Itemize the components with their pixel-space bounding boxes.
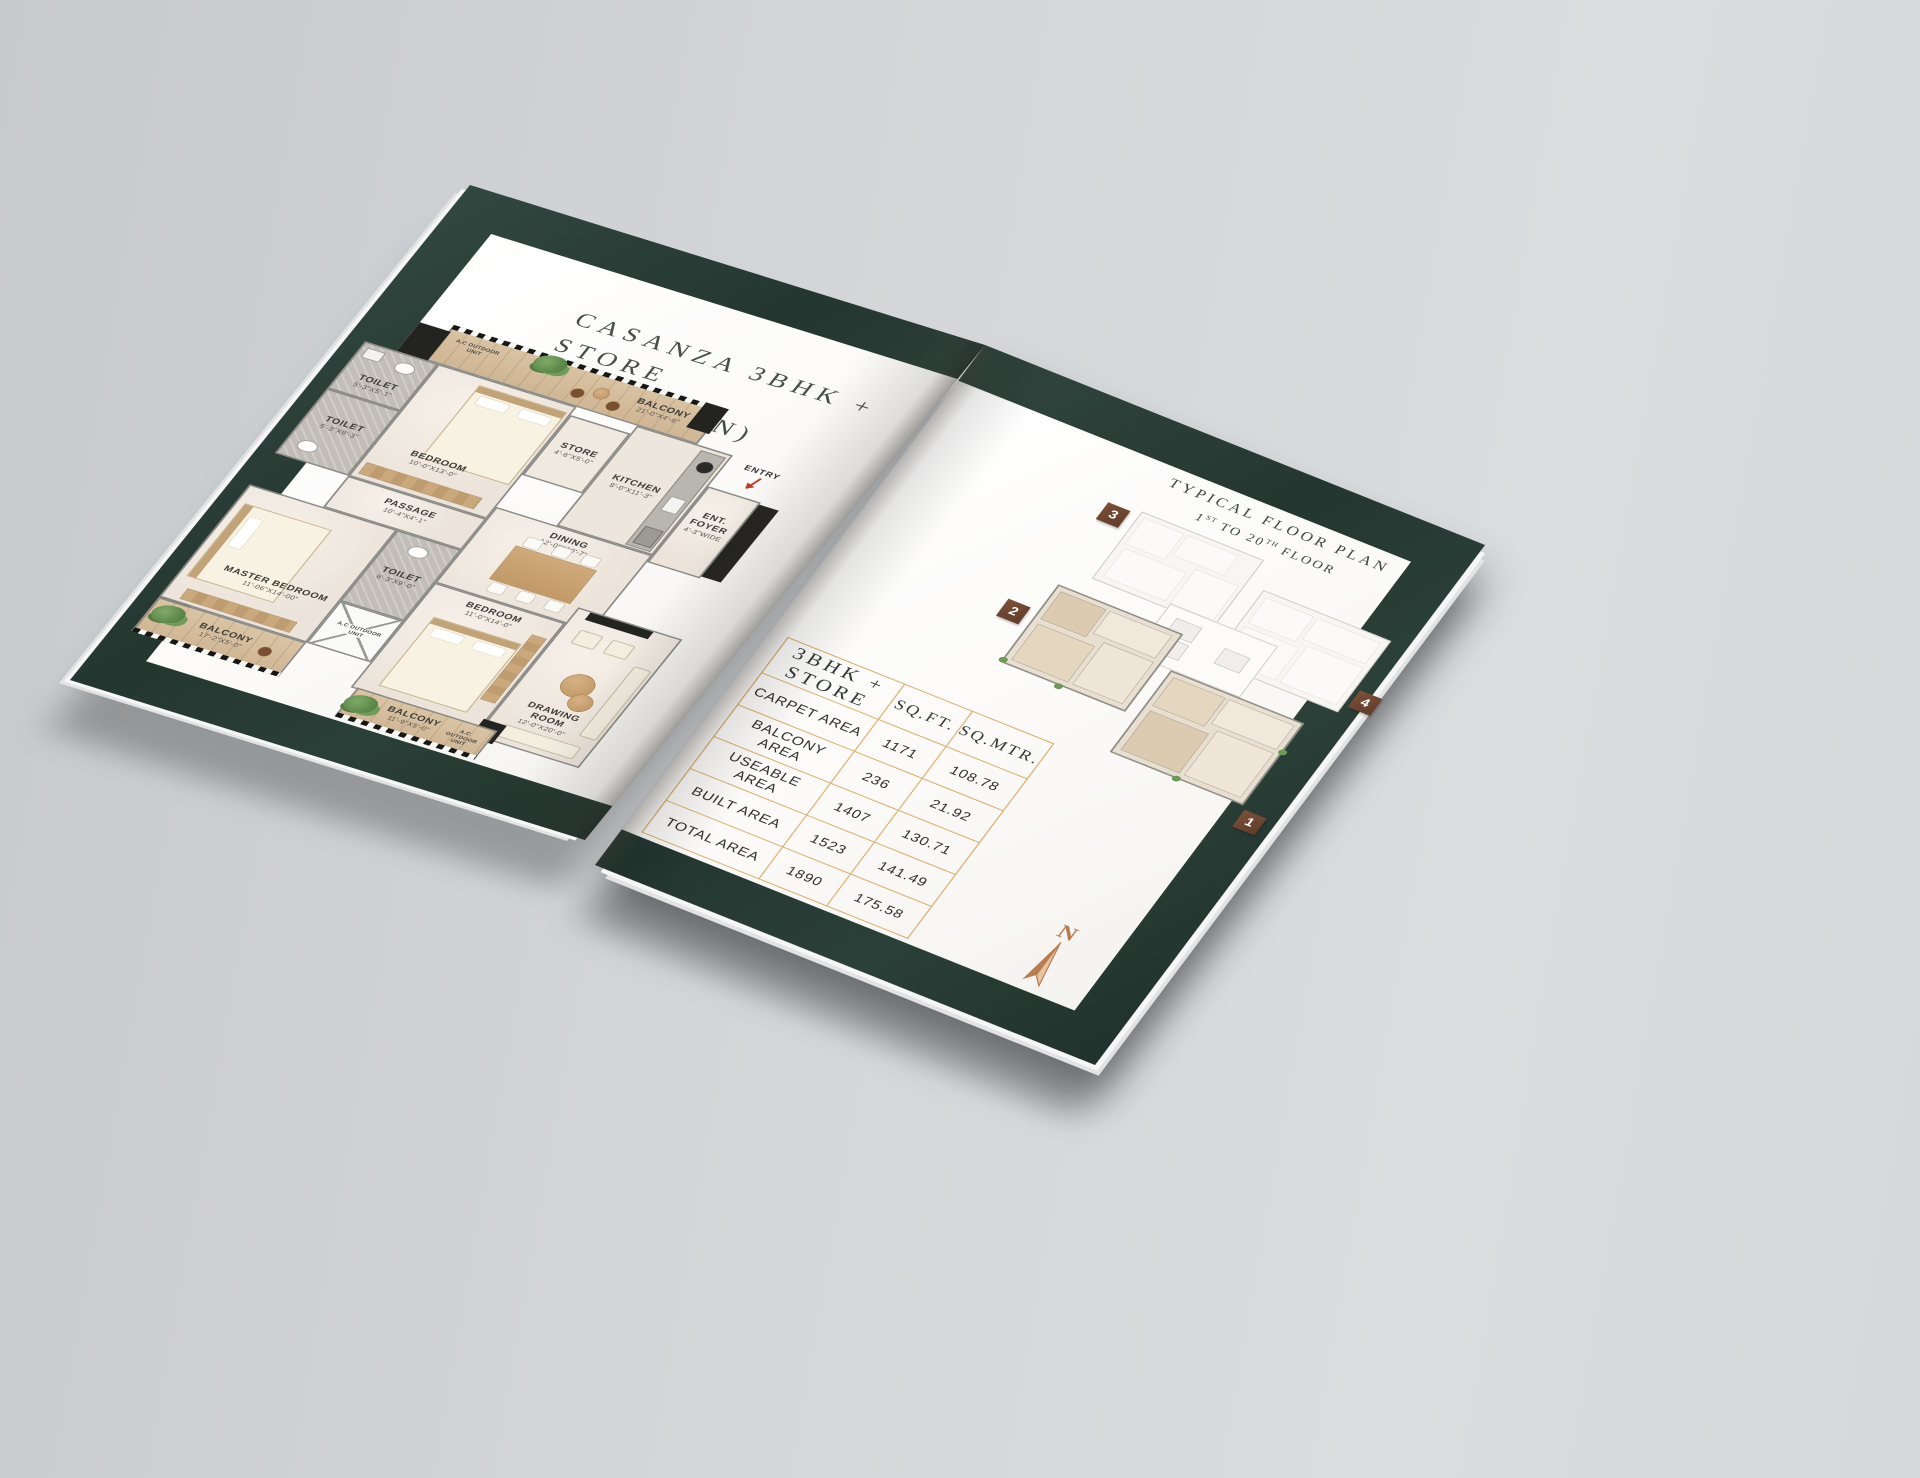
unit-badge-1: 1 bbox=[1232, 810, 1267, 836]
room-label: KITCHEN8'-0"X11'-3" bbox=[596, 470, 672, 504]
ac-unit-label: A.C OUTDOOR UNIT bbox=[330, 620, 385, 644]
sink-icon bbox=[360, 348, 386, 363]
room-label: TOILET5'-3"X9'-3" bbox=[303, 410, 381, 445]
room-label: STORE4'-6"X5'-0" bbox=[544, 438, 609, 469]
toilet-icon bbox=[404, 544, 432, 560]
plant-icon bbox=[1053, 682, 1065, 690]
plant-icon bbox=[1170, 775, 1182, 783]
toilet-icon bbox=[294, 438, 322, 454]
armchair-icon bbox=[602, 640, 636, 661]
balcony-chair-icon bbox=[568, 387, 588, 400]
bed-icon bbox=[378, 617, 522, 713]
lift-icon bbox=[1214, 648, 1251, 673]
entry-arrow-icon bbox=[745, 478, 762, 489]
scene-background: CASANZA 3BHK + STORE (UNIT PLAN) A.C OUT… bbox=[0, 0, 1920, 1478]
toilet-icon bbox=[391, 360, 419, 376]
plant-icon bbox=[1277, 748, 1289, 756]
plant-icon bbox=[997, 656, 1009, 664]
room-label: TOILET6'-3"X9'-0" bbox=[364, 562, 434, 595]
armchair-icon bbox=[570, 630, 604, 651]
